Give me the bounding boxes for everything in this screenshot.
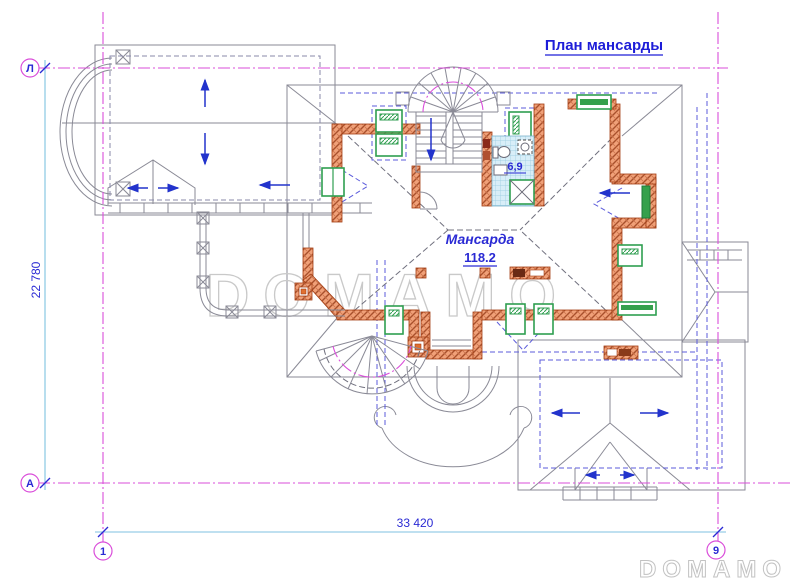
watermark-corner: DOMAMO (639, 556, 787, 583)
axis-bubble-row-top: Л (26, 63, 34, 75)
axis-bubble-row-bottom: А (26, 478, 34, 490)
floor-plan-page: DOMAMO (0, 0, 800, 583)
bathroom-area-label: 6,9 (507, 161, 522, 173)
chimney-column (295, 283, 312, 300)
axis-bubble-col-left: 1 (100, 546, 106, 558)
dimension-horizontal: 33 420 (397, 516, 434, 530)
main-staircase (416, 112, 482, 209)
room-name-label: Мансарда (446, 231, 515, 247)
shower (510, 180, 534, 204)
dimension-vertical: 22 780 (29, 261, 43, 298)
drawing-title: План мансарды (545, 37, 663, 54)
walls (295, 99, 656, 359)
room-area-label: 118.2 (464, 250, 496, 265)
vent-bar (604, 346, 638, 359)
band-ticks (120, 203, 360, 213)
vent-bar (510, 267, 550, 279)
floor-plan-canvas: DOMAMO (0, 0, 800, 583)
